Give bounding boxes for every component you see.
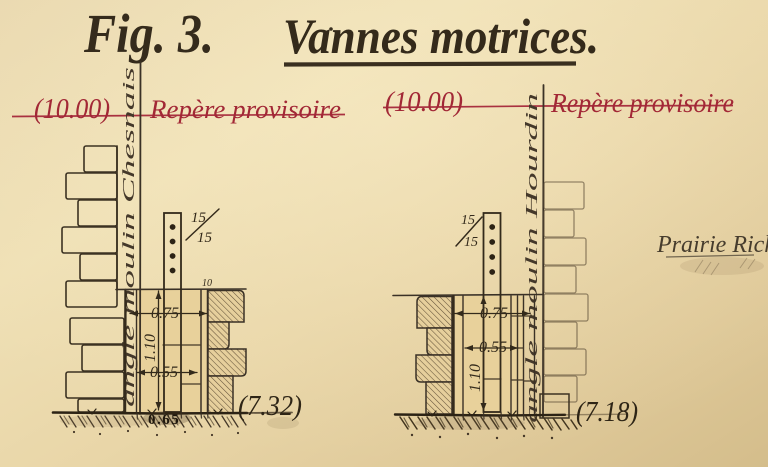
svg-text:angle moulin Chesnais: angle moulin Chesnais [119, 66, 138, 407]
svg-text:0.55: 0.55 [150, 364, 178, 381]
svg-text:(7.18): (7.18) [576, 397, 638, 428]
svg-text:15: 15 [197, 230, 213, 246]
svg-text:15: 15 [464, 235, 478, 250]
svg-text:Repère provisoire: Repère provisoire [550, 88, 734, 118]
svg-text:(10.00): (10.00) [34, 94, 110, 125]
svg-text:10: 10 [202, 278, 212, 289]
svg-text:(7.32): (7.32) [238, 391, 302, 422]
svg-text:Vannes motrices.: Vannes motrices. [283, 8, 599, 64]
svg-text:0.75: 0.75 [480, 305, 508, 322]
svg-text:0.75: 0.75 [151, 305, 179, 322]
svg-text:Repère provisoire: Repère provisoire [149, 95, 341, 124]
svg-text:1.10: 1.10 [142, 334, 159, 362]
svg-text:15: 15 [461, 213, 475, 228]
svg-text:1.10: 1.10 [467, 364, 484, 392]
svg-text:angle moulin Hourdin: angle moulin Hourdin [522, 93, 541, 423]
svg-text:0.65: 0.65 [148, 412, 180, 428]
svg-text:Fig. 3.: Fig. 3. [83, 3, 214, 64]
svg-text:Prairie Riche: Prairie Riche [656, 232, 768, 258]
svg-text:(10.00): (10.00) [385, 87, 463, 118]
